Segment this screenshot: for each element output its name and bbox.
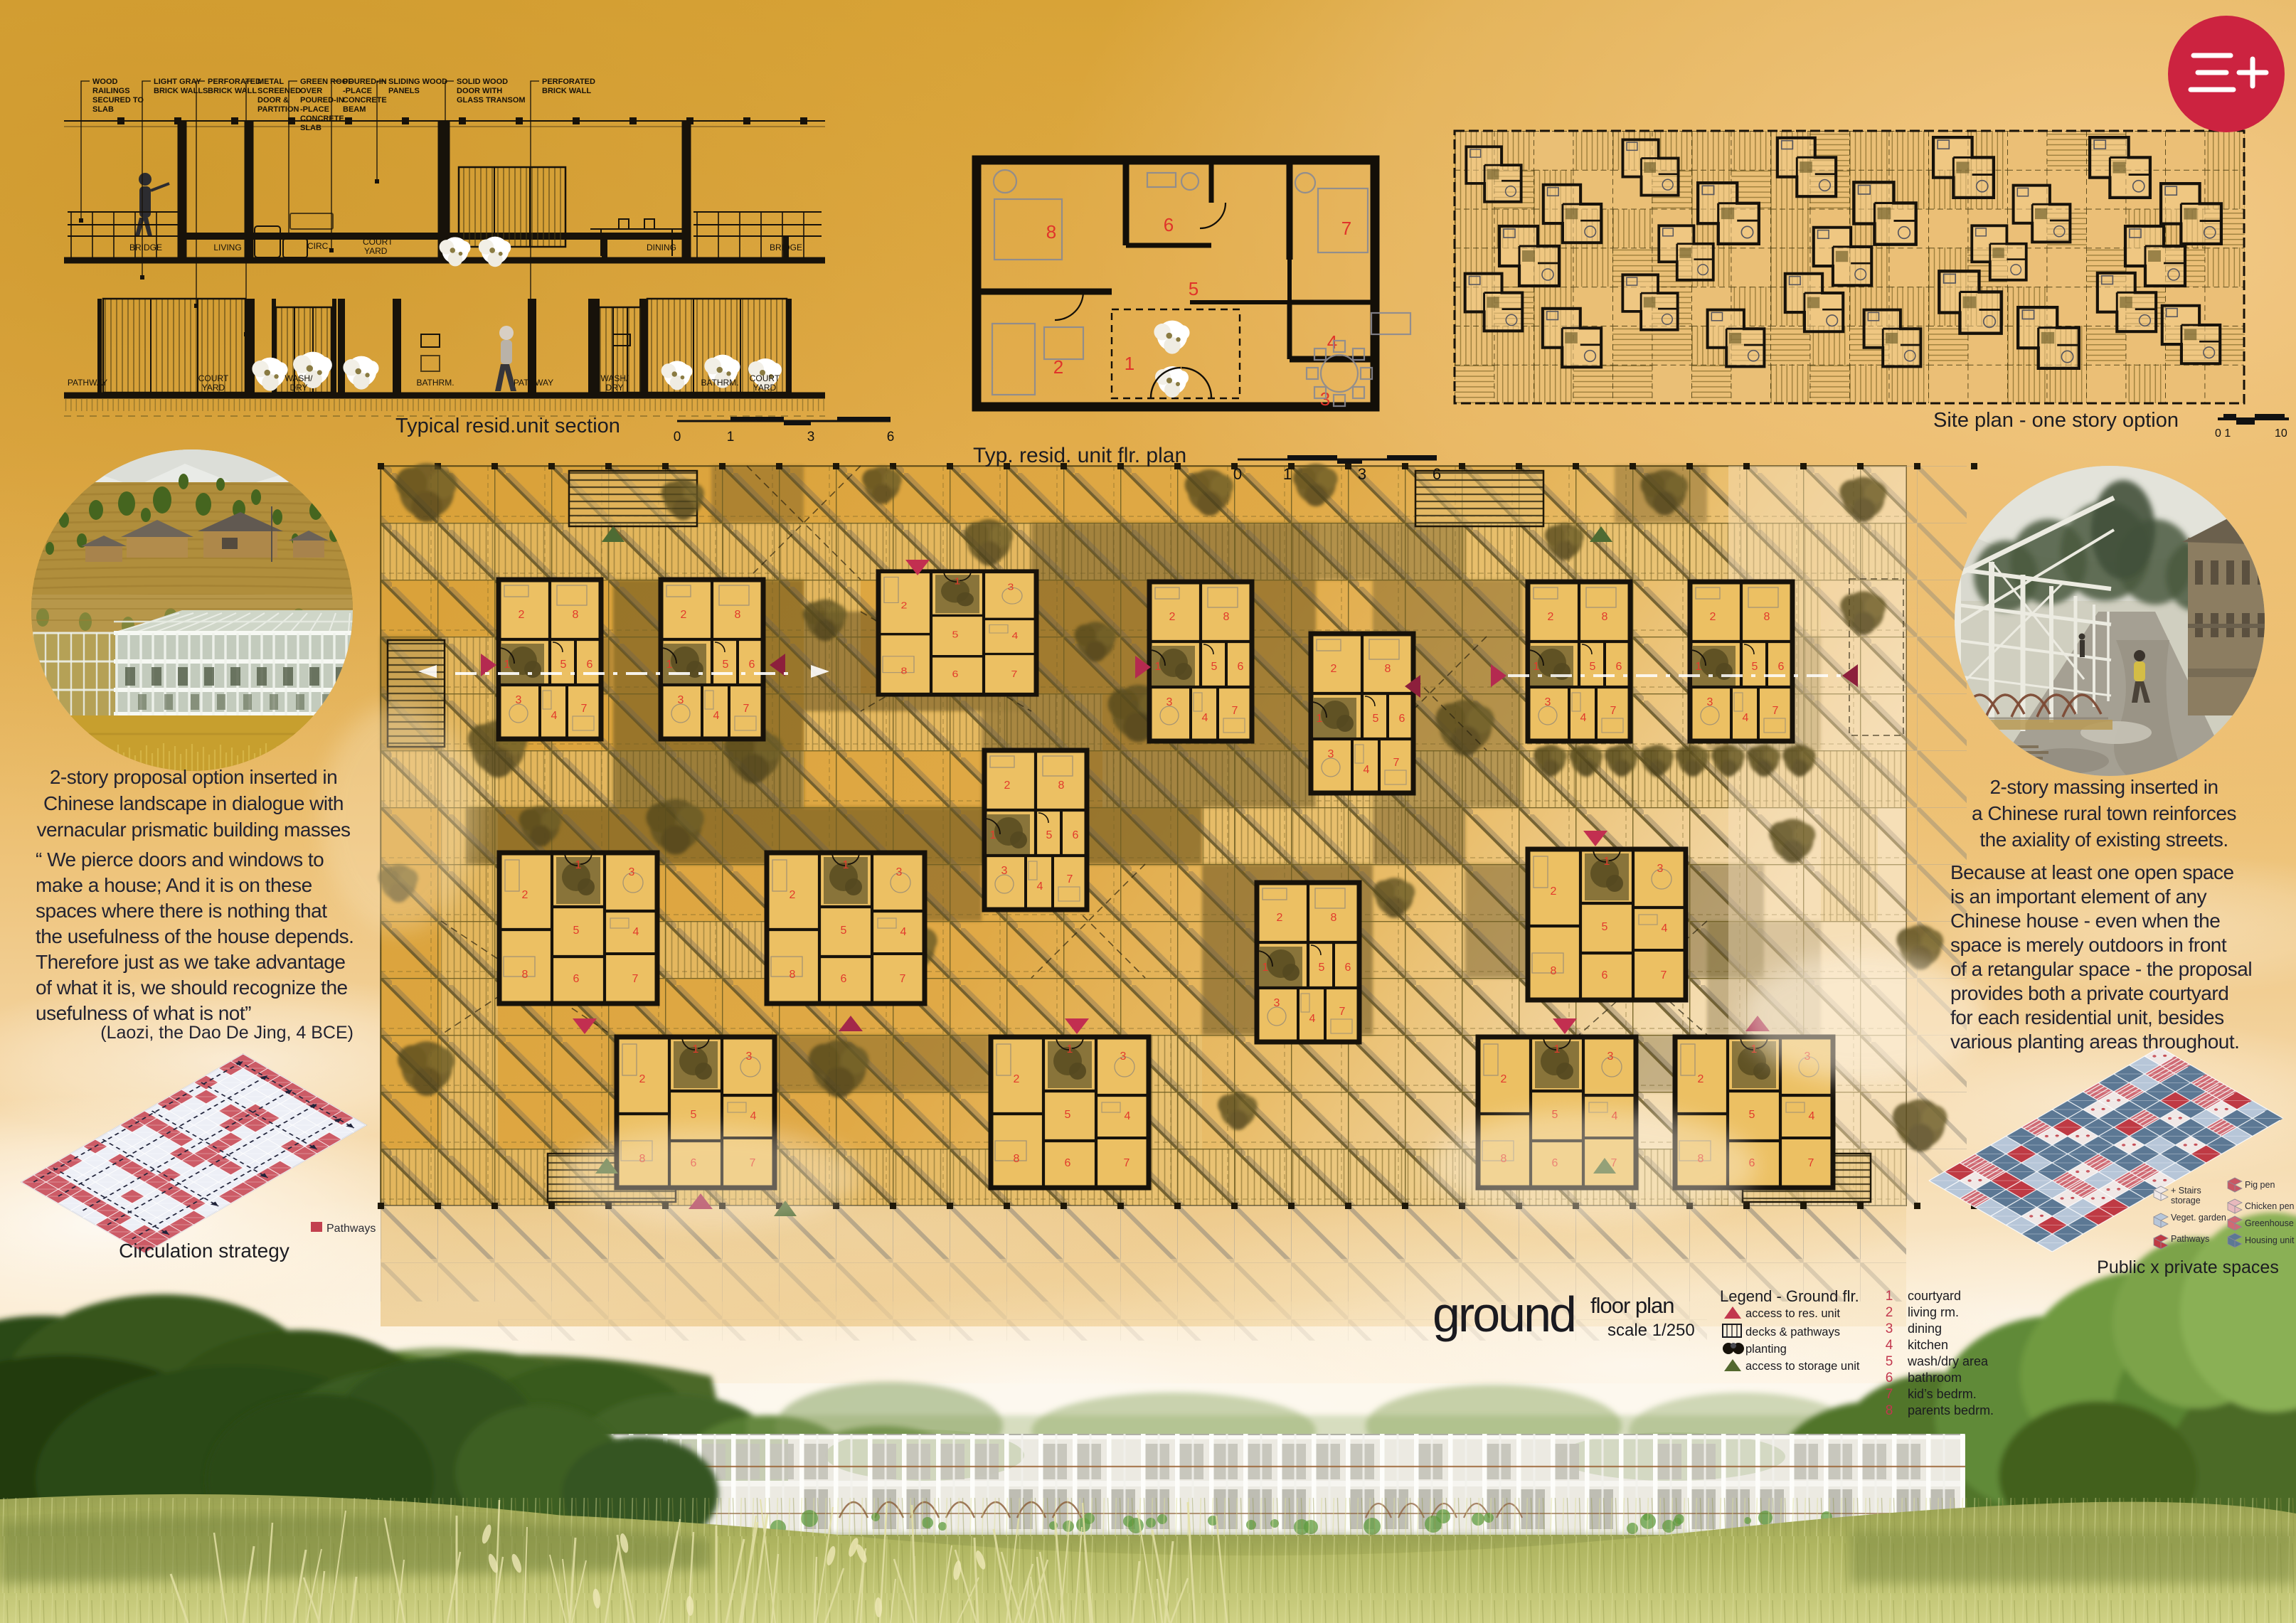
svg-text:SOLID WOOD: SOLID WOOD	[457, 78, 508, 86]
svg-text:Pathways: Pathways	[2171, 1234, 2209, 1244]
svg-text:“ We pierce doors and windows: “ We pierce doors and windows to	[36, 848, 324, 871]
svg-text:0 1: 0 1	[2215, 427, 2231, 440]
svg-text:WASH/: WASH/	[285, 373, 314, 383]
svg-text:Chinese landscape in dialogue: Chinese landscape in dialogue with	[43, 792, 344, 814]
svg-text:storage: storage	[2171, 1196, 2201, 1206]
svg-text:RAILINGS: RAILINGS	[92, 87, 130, 95]
svg-text:Because at least one open spac: Because at least one open space	[1950, 861, 2234, 883]
svg-text:PATHWAY: PATHWAY	[68, 378, 107, 388]
svg-text:PERFORATED: PERFORATED	[542, 78, 595, 86]
svg-text:Site plan - one story option: Site plan - one story option	[1933, 409, 2179, 432]
svg-text:Public x private spaces: Public x private spaces	[2097, 1257, 2279, 1277]
svg-text:8: 8	[1886, 1403, 1893, 1418]
svg-text:is an important element of any: is an important element of any	[1950, 885, 2207, 908]
svg-text:decks & pathways: decks & pathways	[1745, 1326, 1840, 1339]
svg-text:YARD: YARD	[202, 383, 225, 393]
svg-text:access to storage unit: access to storage unit	[1745, 1360, 1860, 1373]
svg-text:COURT: COURT	[750, 373, 780, 383]
svg-text:of what it is, we should recog: of what it is, we should recognize the	[36, 977, 348, 999]
svg-text:CONCRETE: CONCRETE	[300, 115, 344, 123]
svg-text:LIVING: LIVING	[213, 243, 241, 252]
svg-text:WASH/: WASH/	[601, 373, 629, 383]
svg-text:space is merely outdoors in fr: space is merely outdoors in front	[1950, 934, 2227, 956]
svg-text:DRY: DRY	[605, 383, 623, 393]
svg-text:courtyard: courtyard	[1908, 1289, 1961, 1303]
svg-text:6: 6	[1164, 214, 1174, 235]
svg-text:bathroom: bathroom	[1908, 1371, 1962, 1385]
svg-text:10: 10	[2275, 427, 2287, 440]
svg-text:PANELS: PANELS	[388, 87, 420, 95]
svg-text:WOOD: WOOD	[92, 78, 117, 86]
svg-text:Pathways: Pathways	[326, 1223, 376, 1235]
svg-text:METAL: METAL	[257, 78, 284, 86]
svg-text:2-story proposal option insert: 2-story proposal option inserted in	[50, 766, 337, 788]
svg-text:planting: planting	[1745, 1343, 1787, 1356]
svg-text:5: 5	[1886, 1354, 1893, 1369]
svg-text:6: 6	[887, 430, 895, 445]
svg-text:5: 5	[1189, 278, 1199, 299]
svg-text:GLASS TRANSOM: GLASS TRANSOM	[457, 96, 526, 105]
svg-text:6: 6	[1433, 465, 1441, 483]
svg-text:8: 8	[1046, 221, 1056, 243]
svg-text:6: 6	[1886, 1371, 1893, 1385]
svg-text:Chinese house - even when the: Chinese house - even when the	[1950, 910, 2220, 932]
svg-text:4: 4	[1886, 1338, 1893, 1353]
svg-text:DRY: DRY	[289, 383, 307, 393]
svg-text:the axiality of existing stree: the axiality of existing streets.	[1979, 829, 2228, 851]
svg-text:SCREENED: SCREENED	[257, 87, 301, 95]
svg-text:CONCRETE: CONCRETE	[343, 96, 387, 105]
svg-text:Veget. garden: Veget. garden	[2171, 1213, 2226, 1223]
svg-text:SLAB: SLAB	[300, 124, 321, 132]
svg-text:of a retangular space - the pr: of a retangular space - the proposal	[1950, 958, 2252, 980]
svg-text:BEAM: BEAM	[343, 105, 366, 114]
svg-text:COURT: COURT	[198, 373, 229, 383]
svg-text:Legend - Ground flr.: Legend - Ground flr.	[1720, 1287, 1859, 1305]
svg-text:3: 3	[1358, 465, 1366, 483]
svg-text:1: 1	[1125, 353, 1134, 374]
svg-text:Circulation strategy: Circulation strategy	[119, 1240, 289, 1262]
svg-text:spaces where there is nothing: spaces where there is nothing that	[36, 900, 327, 922]
svg-text:7: 7	[1886, 1387, 1893, 1402]
svg-text:usefulness of what is not”: usefulness of what is not”	[36, 1002, 251, 1024]
svg-text:Chicken pen: Chicken pen	[2245, 1201, 2295, 1211]
svg-text:2: 2	[1886, 1305, 1893, 1320]
svg-text:3: 3	[807, 430, 815, 445]
svg-text:Greenhouse: Greenhouse	[2245, 1218, 2294, 1228]
svg-text:DINING: DINING	[647, 243, 676, 252]
svg-text:1: 1	[1283, 465, 1292, 483]
svg-text:DOOR &: DOOR &	[257, 96, 289, 105]
svg-text:for each residential unit, bes: for each residential unit, besides	[1950, 1006, 2224, 1028]
svg-text:BRIDGE: BRIDGE	[770, 243, 802, 252]
svg-text:OVER: OVER	[300, 87, 322, 95]
svg-text:living rm.: living rm.	[1908, 1305, 1959, 1319]
svg-text:kid’s bedrm.: kid’s bedrm.	[1908, 1387, 1977, 1401]
svg-text:Typ. resid. unit flr. plan: Typ. resid. unit flr. plan	[973, 444, 1186, 467]
svg-text:PARTITION: PARTITION	[257, 105, 299, 114]
svg-text:0: 0	[674, 430, 681, 445]
svg-text:BRIDGE: BRIDGE	[129, 243, 162, 252]
svg-text:Pig pen: Pig pen	[2245, 1180, 2275, 1190]
svg-text:scale 1/250: scale 1/250	[1607, 1321, 1695, 1340]
svg-text:+ Stairs: + Stairs	[2171, 1186, 2201, 1196]
svg-text:vernacular prismatic building: vernacular prismatic building masses	[36, 819, 350, 841]
svg-text:BATHRM.: BATHRM.	[701, 378, 738, 388]
svg-text:Housing unit: Housing unit	[2245, 1235, 2295, 1245]
svg-text:BRICK WALLS: BRICK WALLS	[154, 87, 208, 95]
svg-text:ground: ground	[1433, 1287, 1575, 1342]
svg-text:COURT: COURT	[363, 237, 393, 247]
svg-text:kitchen: kitchen	[1908, 1338, 1948, 1352]
svg-text:LIGHT GRAY: LIGHT GRAY	[154, 78, 201, 86]
svg-text:-PLACE: -PLACE	[343, 87, 372, 95]
svg-text:SLIDING WOOD: SLIDING WOOD	[388, 78, 447, 86]
svg-text:CIRC.: CIRC.	[307, 241, 331, 251]
svg-text:1: 1	[1886, 1289, 1893, 1304]
svg-text:YARD: YARD	[364, 246, 388, 256]
svg-text:dining: dining	[1908, 1321, 1942, 1336]
svg-text:wash/dry area: wash/dry area	[1907, 1354, 1989, 1368]
svg-text:POURED-IN: POURED-IN	[343, 78, 387, 86]
svg-text:a Chinese rural town reinforce: a Chinese rural town reinforces	[1972, 802, 2236, 824]
svg-text:floor plan: floor plan	[1590, 1293, 1674, 1318]
svg-text:DOOR WITH: DOOR WITH	[457, 87, 502, 95]
svg-text:access to res. unit: access to res. unit	[1745, 1307, 1840, 1320]
svg-text:BRICK WALL: BRICK WALL	[542, 87, 591, 95]
svg-text:Therefore just as we take adva: Therefore just as we take advantage	[36, 951, 345, 973]
svg-text:4: 4	[1327, 331, 1337, 353]
svg-text:parents bedrm.: parents bedrm.	[1908, 1403, 1994, 1417]
svg-text:YARD: YARD	[753, 383, 777, 393]
svg-text:0: 0	[1233, 465, 1242, 483]
svg-text:2-story massing inserted in: 2-story massing inserted in	[1989, 776, 2218, 798]
svg-text:BRICK WALL: BRICK WALL	[208, 87, 257, 95]
svg-text:3: 3	[1886, 1321, 1893, 1336]
svg-text:provides both a private courty: provides both a private courtyard	[1950, 982, 2228, 1004]
svg-text:PATHWAY: PATHWAY	[514, 378, 553, 388]
svg-text:-PLACE: -PLACE	[300, 105, 329, 114]
svg-text:1: 1	[727, 430, 735, 445]
svg-text:(Laozi, the Dao De Jing, 4 BCE: (Laozi, the Dao De Jing, 4 BCE)	[100, 1023, 354, 1043]
svg-text:the usefulness of the house de: the usefulness of the house depends.	[36, 925, 354, 947]
svg-text:make a house; And it is on the: make a house; And it is on these	[36, 874, 312, 896]
svg-text:7: 7	[1341, 218, 1351, 239]
svg-text:Typical resid.unit section: Typical resid.unit section	[395, 415, 620, 437]
svg-text:PERFORATED: PERFORATED	[208, 78, 261, 86]
svg-text:BATHRM.: BATHRM.	[416, 378, 454, 388]
svg-text:SECURED TO: SECURED TO	[92, 96, 144, 105]
svg-text:POURED-IN: POURED-IN	[300, 96, 344, 105]
svg-text:SLAB: SLAB	[92, 105, 114, 114]
svg-text:various planting areas through: various planting areas throughout.	[1950, 1031, 2239, 1053]
